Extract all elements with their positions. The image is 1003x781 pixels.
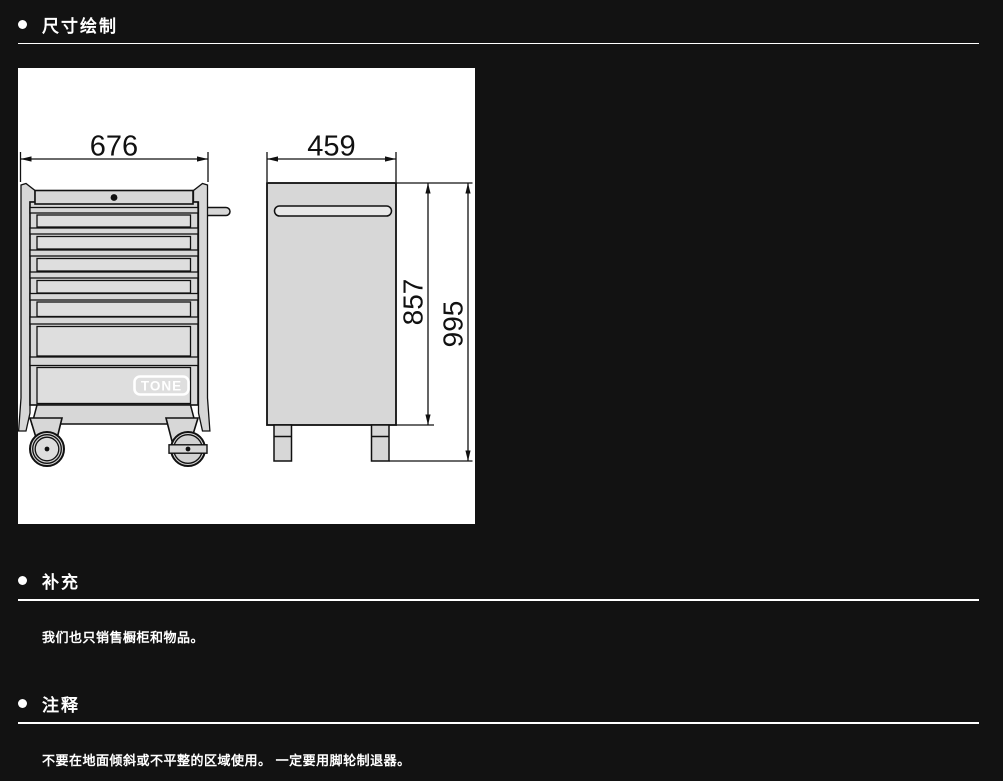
section-divider [18,599,979,601]
front-view: 676 [19,131,230,467]
lock-icon [111,194,118,201]
side-body [267,183,396,425]
brand-logo-text: TONE [141,379,182,394]
dimension-drawing-panel: 676 [18,68,475,524]
section-title: 注释 [42,691,80,716]
body-height-dimension-label: 857 [398,279,429,326]
section-bullet-icon [18,699,27,708]
side-handle-slot [275,206,392,216]
left-caster-icon [30,418,64,466]
section-bullet-icon [18,20,27,29]
section-divider [18,43,979,45]
arrowhead-icon [465,183,470,194]
dimension-drawing-svg: 676 [18,68,475,524]
section-header-notes: 注释 [18,691,80,716]
depth-dimension-label: 459 [307,131,355,163]
arrowhead-icon [465,451,470,462]
overall-height-dimension-label: 995 [438,301,469,348]
arrowhead-icon [21,156,32,161]
section-title: 补充 [42,568,80,593]
width-dimension-label: 676 [90,131,138,163]
section-title: 尺寸绘制 [42,12,118,37]
arrowhead-icon [267,156,278,161]
arrowhead-icon [425,183,430,194]
notes-text: 不要在地面倾斜或不平整的区域使用。 一定要用脚轮制退器。 [42,750,411,769]
product-detail-page: 尺寸绘制 676 [0,0,1003,781]
side-view: 459 857 [267,131,473,462]
arrowhead-icon [385,156,396,161]
section-bullet-icon [18,576,27,585]
arrowhead-icon [425,415,430,426]
supplement-text: 我们也只销售橱柜和物品。 [42,627,204,646]
section-header-dimensions: 尺寸绘制 [18,12,118,37]
section-divider [18,722,979,724]
side-legs [274,425,389,461]
section-header-supplement: 补充 [18,568,80,593]
arrowhead-icon [197,156,208,161]
